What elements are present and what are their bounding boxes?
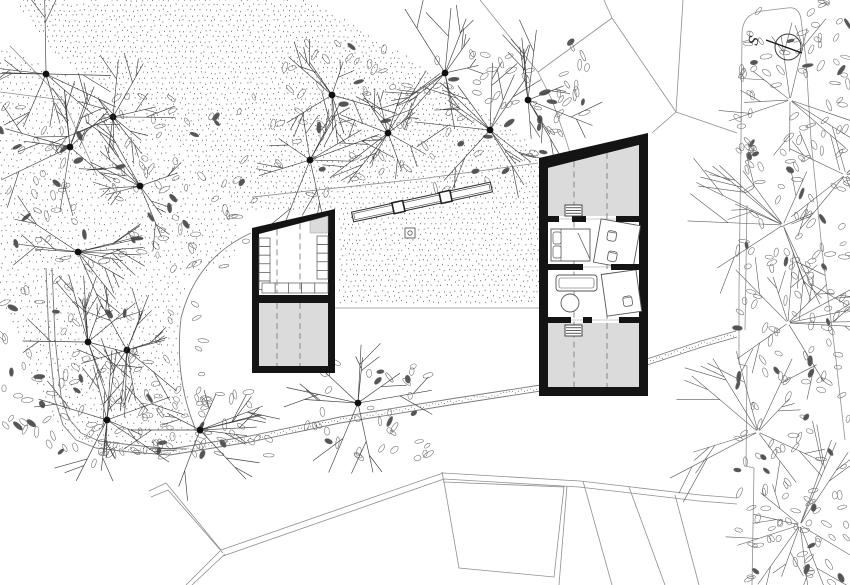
site-plan-page: S [0, 0, 850, 585]
site-plan-drawing: S [0, 0, 850, 585]
ground-marker [405, 228, 415, 238]
left-cabin [252, 209, 335, 373]
right-cabin [539, 133, 648, 396]
